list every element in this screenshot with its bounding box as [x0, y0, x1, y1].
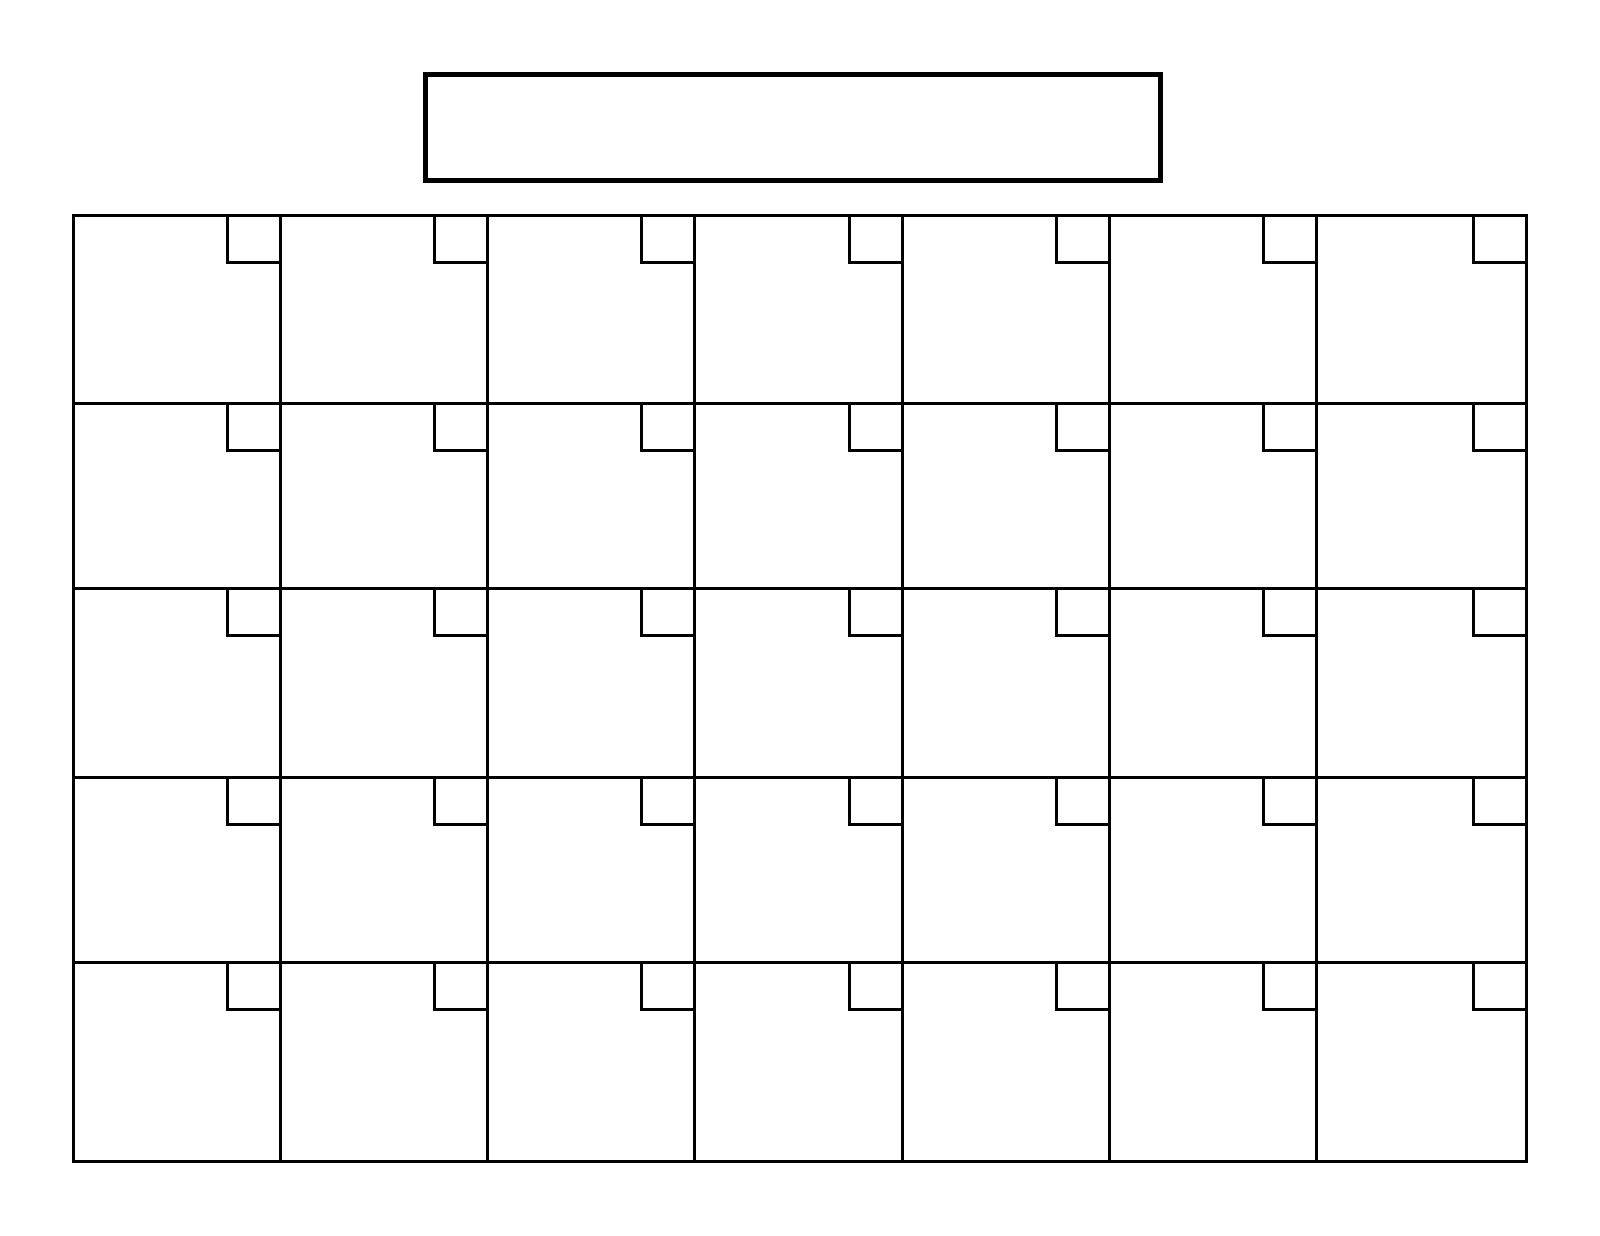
calendar-day-cell[interactable]	[696, 217, 903, 405]
calendar-day-cell[interactable]	[282, 405, 489, 590]
calendar-day-cell[interactable]	[696, 405, 903, 590]
day-number-box[interactable]	[1055, 217, 1108, 264]
day-number-box[interactable]	[1262, 964, 1315, 1011]
calendar-day-cell[interactable]	[1111, 217, 1318, 405]
day-number-box[interactable]	[848, 779, 901, 826]
day-number-box[interactable]	[1055, 590, 1108, 637]
calendar-day-cell[interactable]	[696, 590, 903, 779]
calendar-day-cell[interactable]	[489, 217, 696, 405]
calendar-day-cell[interactable]	[904, 217, 1111, 405]
calendar-day-cell[interactable]	[1318, 779, 1525, 964]
calendar-day-cell[interactable]	[75, 217, 282, 405]
day-number-box[interactable]	[433, 217, 486, 264]
day-number-box[interactable]	[433, 405, 486, 452]
calendar-day-cell[interactable]	[696, 779, 903, 964]
calendar-day-cell[interactable]	[282, 964, 489, 1160]
day-number-box[interactable]	[1262, 217, 1315, 264]
day-number-box[interactable]	[640, 405, 693, 452]
calendar-day-cell[interactable]	[75, 779, 282, 964]
day-number-box[interactable]	[226, 590, 279, 637]
day-number-box[interactable]	[433, 590, 486, 637]
day-number-box[interactable]	[1055, 964, 1108, 1011]
calendar-day-cell[interactable]	[904, 405, 1111, 590]
day-number-box[interactable]	[1472, 964, 1525, 1011]
day-number-box[interactable]	[1055, 779, 1108, 826]
day-number-box[interactable]	[1262, 405, 1315, 452]
day-number-box[interactable]	[640, 590, 693, 637]
calendar-day-cell[interactable]	[489, 405, 696, 590]
calendar-day-cell[interactable]	[1111, 405, 1318, 590]
calendar-day-cell[interactable]	[1318, 217, 1525, 405]
day-number-box[interactable]	[848, 590, 901, 637]
calendar-day-cell[interactable]	[282, 590, 489, 779]
day-number-box[interactable]	[226, 217, 279, 264]
calendar-day-cell[interactable]	[904, 964, 1111, 1160]
calendar-day-cell[interactable]	[282, 217, 489, 405]
calendar-day-cell[interactable]	[1318, 590, 1525, 779]
day-number-box[interactable]	[848, 217, 901, 264]
day-number-box[interactable]	[1472, 405, 1525, 452]
calendar-day-cell[interactable]	[1111, 590, 1318, 779]
day-number-box[interactable]	[226, 964, 279, 1011]
day-number-box[interactable]	[1472, 590, 1525, 637]
calendar-day-cell[interactable]	[75, 964, 282, 1160]
calendar-day-cell[interactable]	[696, 964, 903, 1160]
calendar-title-field[interactable]	[423, 72, 1163, 183]
calendar-template-page	[0, 0, 1600, 1236]
calendar-day-cell[interactable]	[489, 779, 696, 964]
day-number-box[interactable]	[226, 779, 279, 826]
calendar-day-cell[interactable]	[489, 964, 696, 1160]
day-number-box[interactable]	[640, 779, 693, 826]
day-number-box[interactable]	[848, 405, 901, 452]
calendar-day-cell[interactable]	[904, 779, 1111, 964]
day-number-box[interactable]	[1262, 590, 1315, 637]
day-number-box[interactable]	[1472, 217, 1525, 264]
calendar-day-cell[interactable]	[1318, 964, 1525, 1160]
calendar-day-cell[interactable]	[1111, 779, 1318, 964]
calendar-day-cell[interactable]	[75, 590, 282, 779]
day-number-box[interactable]	[640, 964, 693, 1011]
calendar-day-cell[interactable]	[489, 590, 696, 779]
day-number-box[interactable]	[848, 964, 901, 1011]
calendar-day-cell[interactable]	[75, 405, 282, 590]
day-number-box[interactable]	[640, 217, 693, 264]
calendar-day-cell[interactable]	[1318, 405, 1525, 590]
day-number-box[interactable]	[1262, 779, 1315, 826]
calendar-day-cell[interactable]	[1111, 964, 1318, 1160]
day-number-box[interactable]	[226, 405, 279, 452]
day-number-box[interactable]	[1055, 405, 1108, 452]
day-number-box[interactable]	[1472, 779, 1525, 826]
calendar-day-cell[interactable]	[904, 590, 1111, 779]
day-number-box[interactable]	[433, 964, 486, 1011]
day-number-box[interactable]	[433, 779, 486, 826]
calendar-day-cell[interactable]	[282, 779, 489, 964]
calendar-grid	[72, 214, 1528, 1163]
